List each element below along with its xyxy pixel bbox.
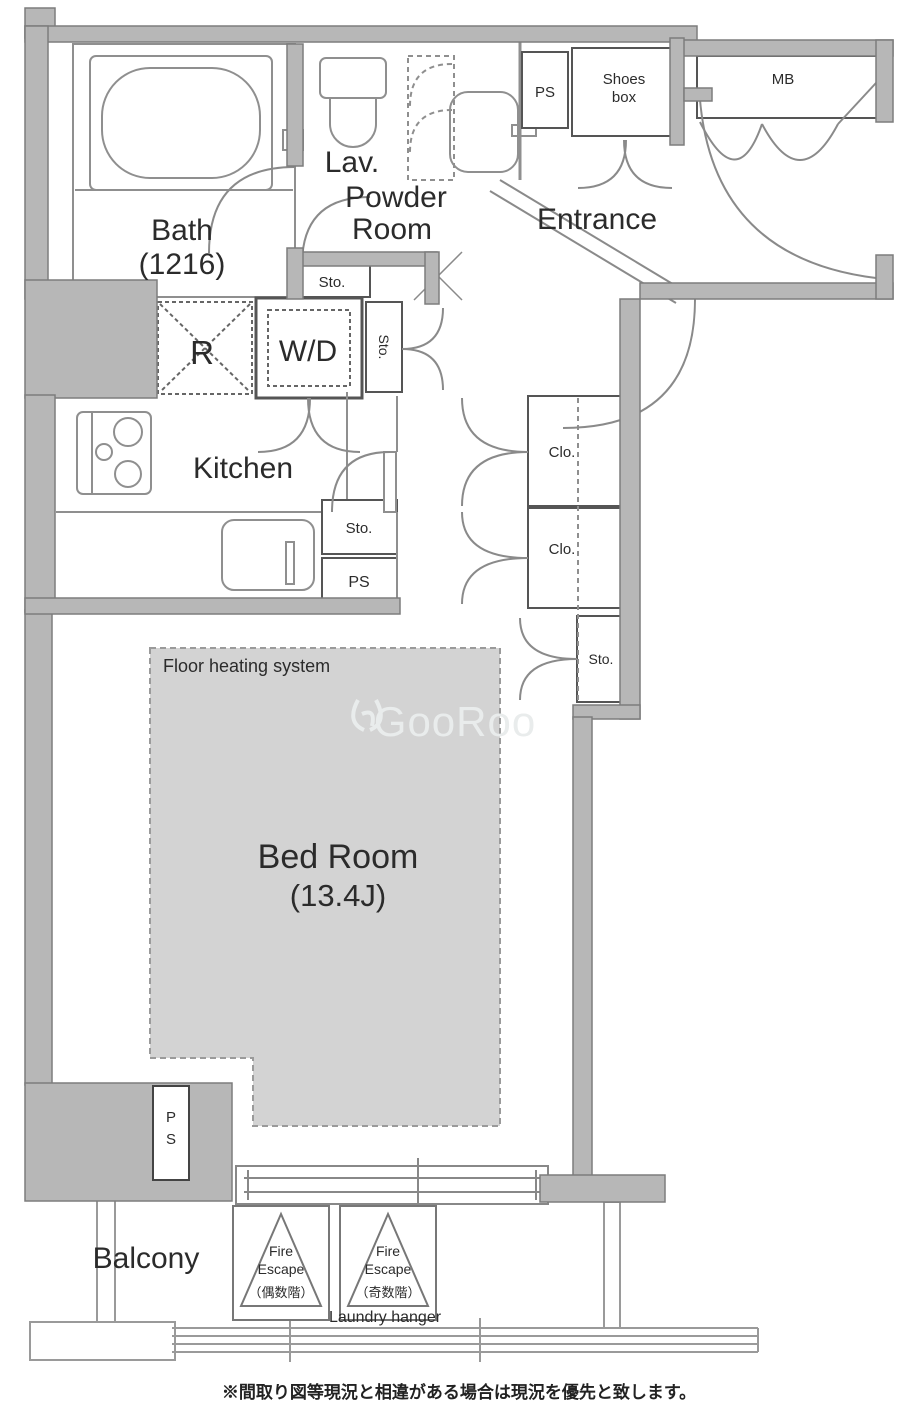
stove (77, 412, 151, 494)
shoes-box-label-1: Shoes (603, 71, 646, 88)
bedroom-size-label: (13.4J) (290, 878, 386, 913)
bath-size-label: (1216) (139, 248, 226, 281)
fire-escape-odd-label-2: Escape (365, 1261, 412, 1277)
closet-upper-box (528, 396, 623, 506)
balcony-railing (172, 1328, 758, 1352)
closet-lower-label: Clo. (549, 541, 576, 558)
closet-upper-label: Clo. (549, 444, 576, 461)
storage-kitchen-label: Sto. (346, 520, 373, 537)
floor-heating-label: Floor heating system (163, 656, 330, 676)
fire-escape-even-label-1: Fire (269, 1243, 293, 1259)
meter-box-label: MB (772, 71, 795, 88)
powder-room-label-2: Room (352, 213, 432, 246)
floor-plan-page: GooRoo (0, 0, 919, 1419)
bedroom-label: Bed Room (258, 838, 419, 876)
lav-label: Lav. (325, 146, 379, 179)
fire-escape-odd-label-1: Fire (376, 1243, 400, 1259)
balcony-label: Balcony (93, 1242, 200, 1275)
pipe-space-top-label: PS (535, 84, 555, 101)
fire-escape-even-label-2: Escape (258, 1261, 305, 1277)
storage-top-label: Sto. (319, 274, 346, 291)
pipe-space-kitchen-label: PS (348, 574, 369, 591)
storage-vertical-label: Sto. (376, 335, 392, 360)
disclaimer-text: ※間取り図等現況と相違がある場合は現況を優先と致します。 (222, 1382, 696, 1402)
laundry-hanger-label: Laundry hanger (329, 1309, 442, 1326)
balcony-window (236, 1158, 548, 1210)
refrigerator-label: R (190, 334, 214, 371)
bath-label: Bath (151, 214, 213, 247)
washer-dryer-label: W/D (279, 335, 337, 368)
kitchen-sink (222, 520, 314, 590)
pipe-space-shaft-label-p: P (166, 1109, 176, 1126)
fire-escape-odd-floors: （奇数階） (355, 1285, 420, 1300)
floor-plan: GooRoo (0, 0, 919, 1419)
storage-right-label: Sto. (589, 651, 614, 667)
fire-escape-even-floors: （偶数階） (248, 1285, 313, 1300)
kitchen-label: Kitchen (193, 452, 293, 485)
shoes-box-label-2: box (612, 89, 637, 106)
closet-lower-box (528, 508, 623, 608)
watermark-text: GooRoo (374, 698, 536, 745)
entrance-label: Entrance (537, 203, 657, 236)
powder-room-label-1: Powder (345, 181, 447, 214)
pipe-space-shaft-label-s: S (166, 1131, 176, 1148)
cabinet (408, 56, 454, 180)
watermark: GooRoo (353, 698, 536, 745)
toilet (320, 58, 386, 147)
